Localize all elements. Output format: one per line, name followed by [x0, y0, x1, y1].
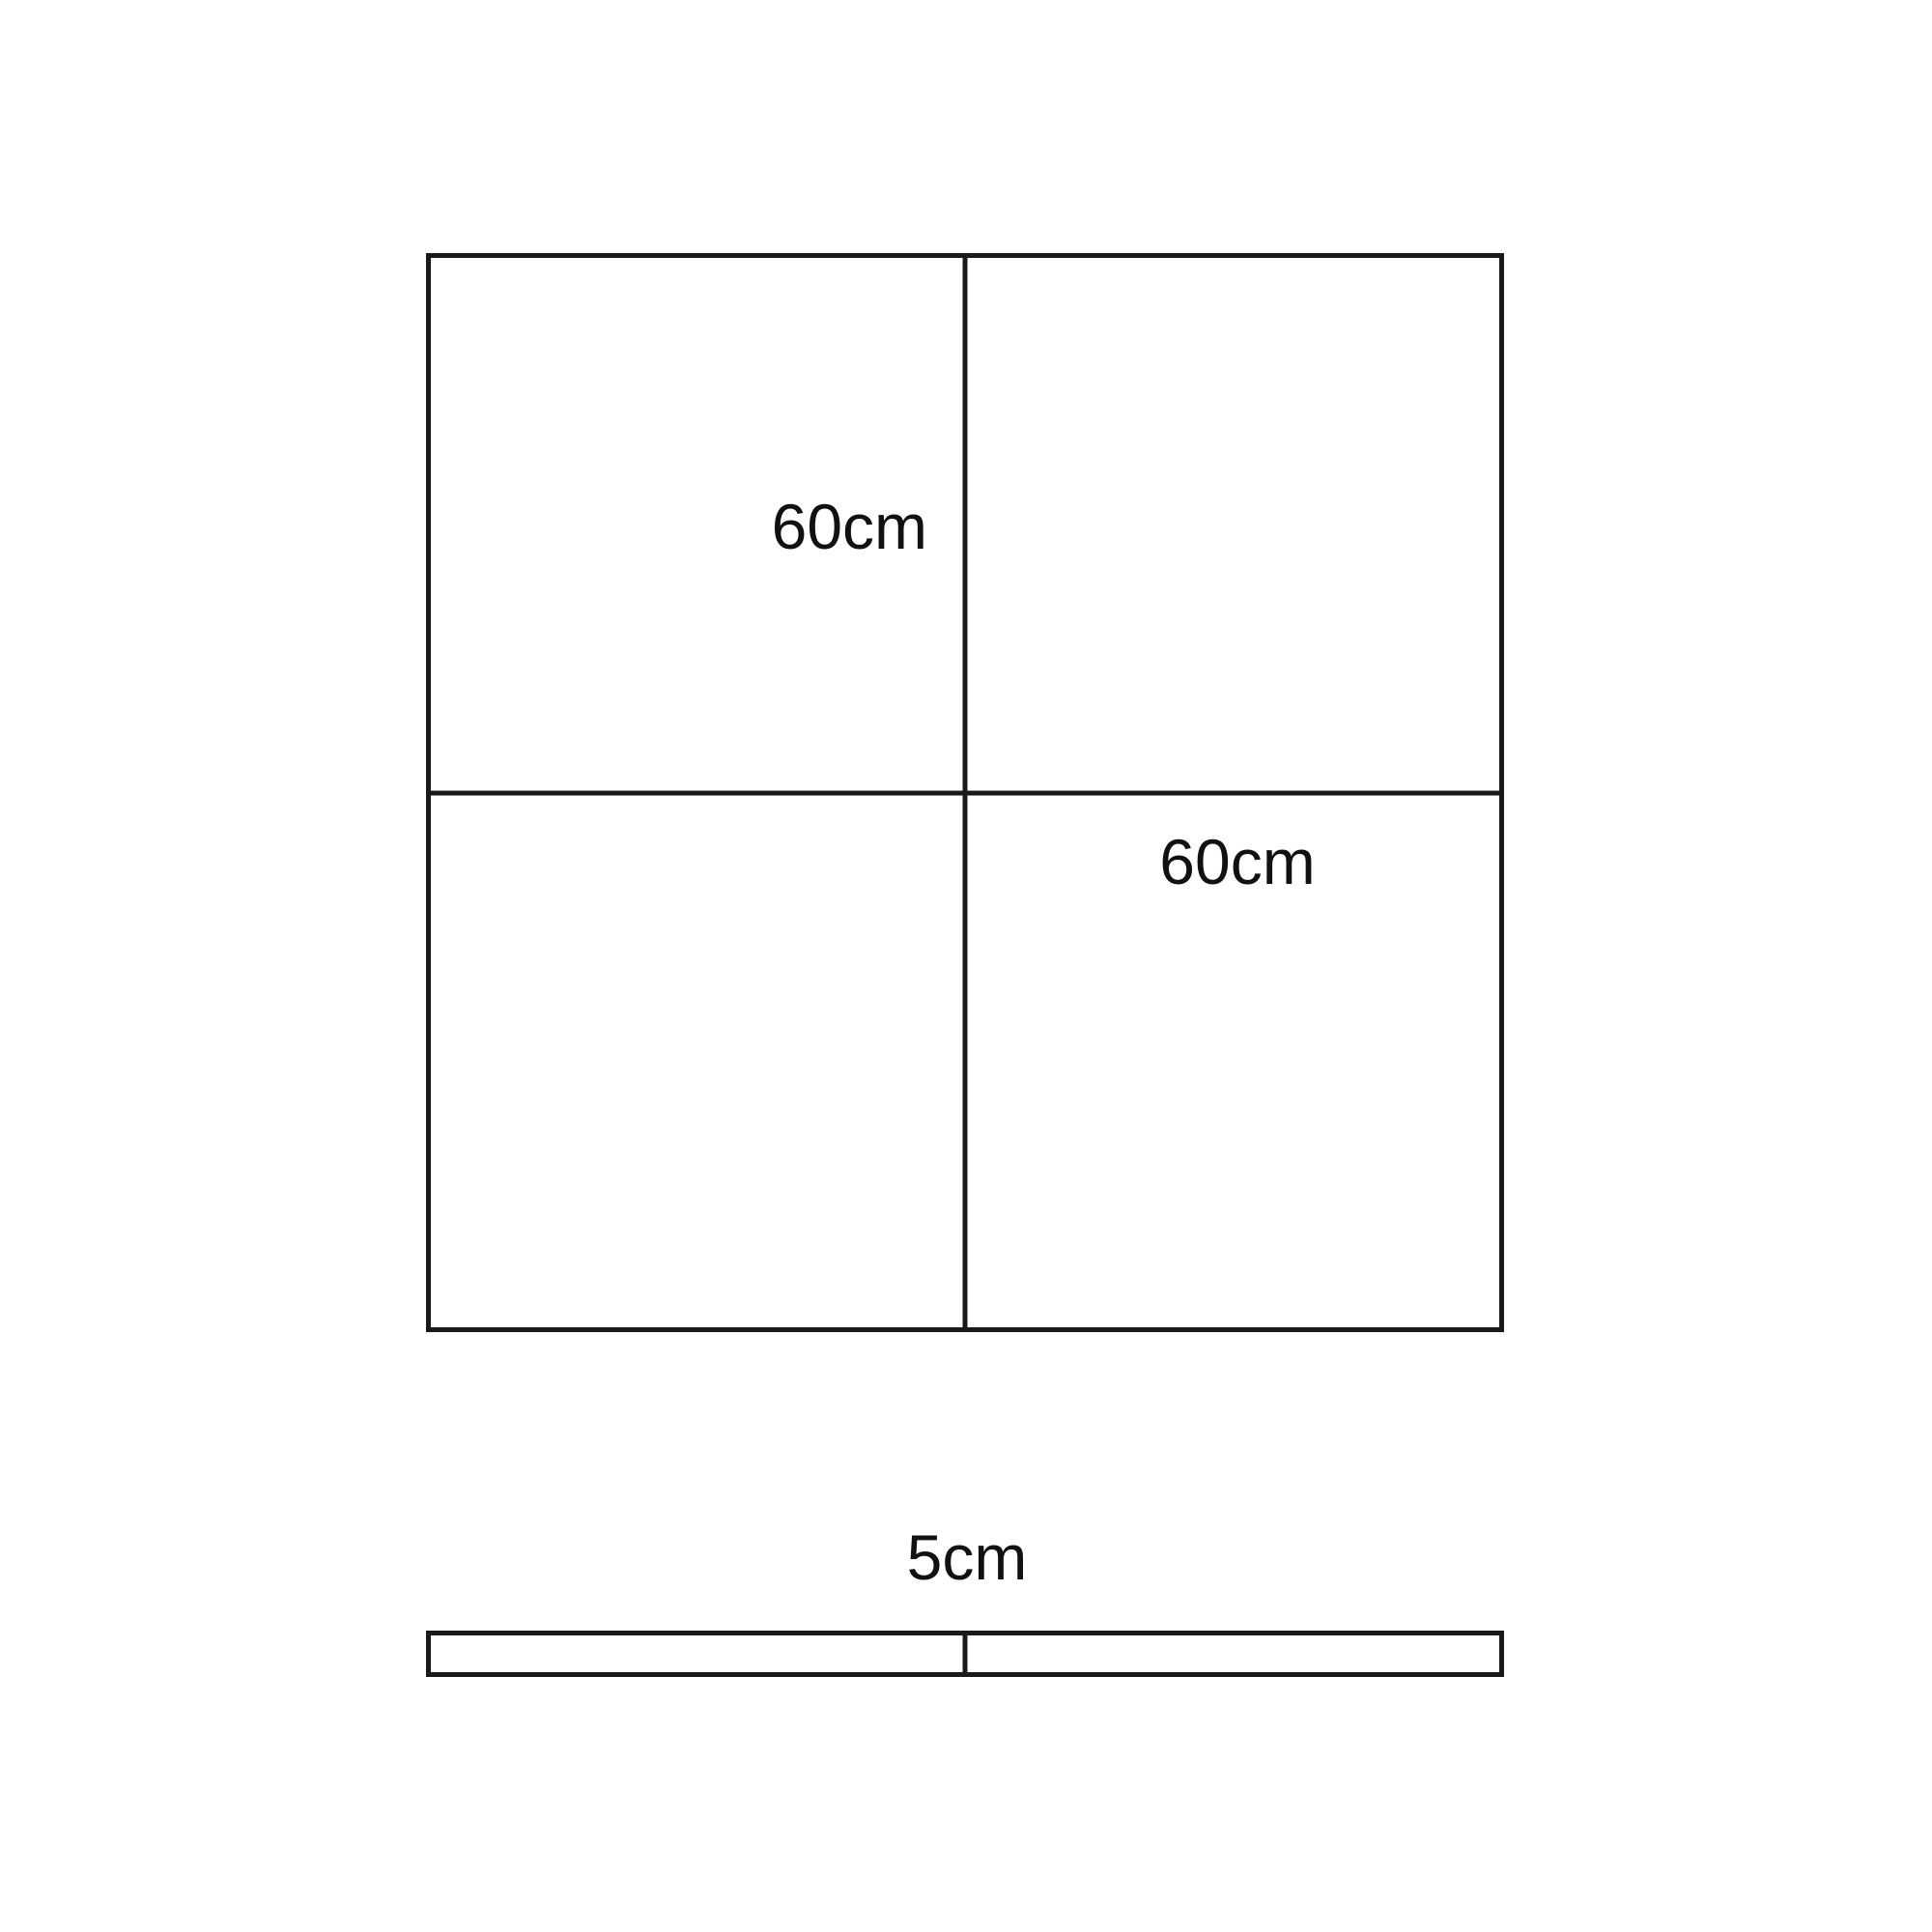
bar-vertical-divider — [963, 1635, 968, 1672]
dimension-label-60cm-top-left: 60cm — [772, 495, 927, 558]
diagram-canvas: 60cm 60cm 5cm — [0, 0, 1932, 1932]
dimension-label-5cm: 5cm — [907, 1525, 1028, 1589]
thin-bar — [426, 1631, 1504, 1677]
dimension-label-60cm-bottom-right: 60cm — [1159, 830, 1315, 894]
large-square — [426, 253, 1504, 1332]
square-horizontal-divider — [431, 790, 1499, 795]
